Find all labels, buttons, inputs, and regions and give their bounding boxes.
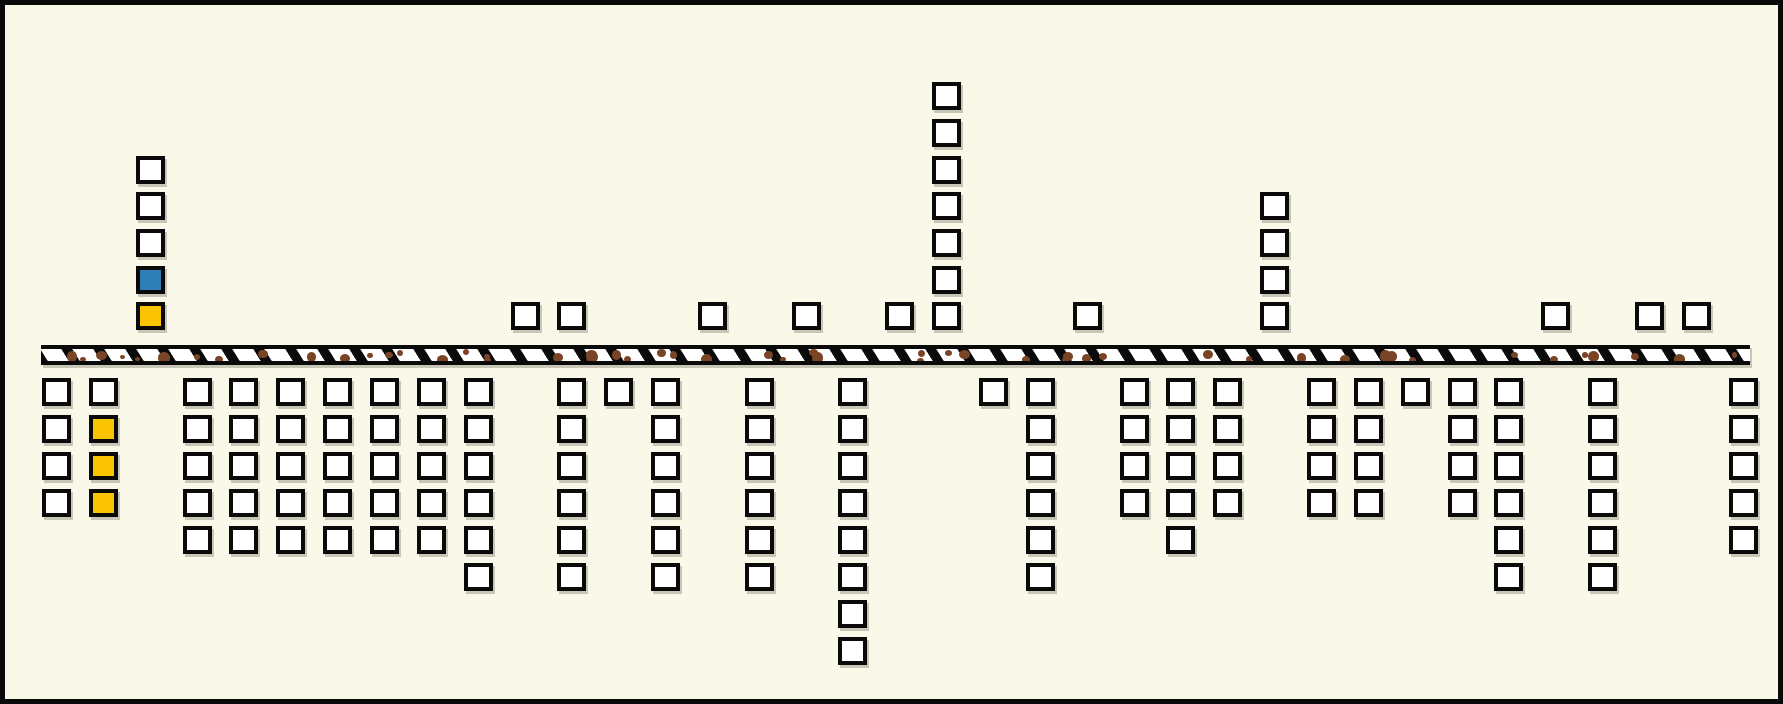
tile-white[interactable] (417, 415, 446, 443)
game-canvas (0, 0, 1783, 704)
tile-white[interactable] (1026, 378, 1055, 406)
tile-white[interactable] (42, 452, 71, 480)
tile-white[interactable] (651, 452, 680, 480)
tile-white[interactable] (276, 452, 305, 480)
tile-white[interactable] (1307, 452, 1336, 480)
tile-white[interactable] (1166, 415, 1195, 443)
tile-white[interactable] (464, 489, 493, 517)
tile-white[interactable] (557, 563, 586, 591)
tile-white[interactable] (1588, 452, 1617, 480)
tile-white[interactable] (745, 526, 774, 554)
tile-white[interactable] (1588, 378, 1617, 406)
tile-white[interactable] (464, 563, 493, 591)
tile-white[interactable] (370, 489, 399, 517)
below-ground-layer (5, 5, 1778, 699)
tile-white[interactable] (1307, 378, 1336, 406)
tile-white[interactable] (1026, 526, 1055, 554)
tile-white[interactable] (1588, 526, 1617, 554)
tile-white[interactable] (464, 378, 493, 406)
tile-white[interactable] (1494, 489, 1523, 517)
tile-white[interactable] (370, 526, 399, 554)
tile-white[interactable] (1213, 415, 1242, 443)
tile-white[interactable] (838, 489, 867, 517)
tile-white[interactable] (229, 489, 258, 517)
tile-white[interactable] (557, 526, 586, 554)
tile-white[interactable] (745, 378, 774, 406)
tile-white[interactable] (417, 452, 446, 480)
tile-white[interactable] (323, 489, 352, 517)
tile-white[interactable] (557, 378, 586, 406)
tile-white[interactable] (1354, 489, 1383, 517)
tile-white[interactable] (1588, 415, 1617, 443)
tile-white[interactable] (1120, 415, 1149, 443)
tile-white[interactable] (183, 415, 212, 443)
tile-white[interactable] (1448, 452, 1477, 480)
tile-white[interactable] (838, 637, 867, 665)
tile-white[interactable] (838, 526, 867, 554)
tile-white[interactable] (276, 378, 305, 406)
tile-white[interactable] (229, 378, 258, 406)
tile-white[interactable] (1026, 489, 1055, 517)
tile-white[interactable] (42, 489, 71, 517)
tile-white[interactable] (838, 563, 867, 591)
tile-white[interactable] (557, 415, 586, 443)
tile-white[interactable] (838, 600, 867, 628)
tile-white[interactable] (745, 452, 774, 480)
tile-white[interactable] (323, 415, 352, 443)
tile-white[interactable] (1307, 489, 1336, 517)
tile-white[interactable] (1120, 452, 1149, 480)
tile-white[interactable] (1120, 489, 1149, 517)
tile-white[interactable] (1307, 415, 1336, 443)
tile-white[interactable] (1354, 452, 1383, 480)
tile-white[interactable] (1494, 452, 1523, 480)
tile-white[interactable] (370, 378, 399, 406)
tile-white[interactable] (276, 489, 305, 517)
tile-white[interactable] (604, 378, 633, 406)
tile-white[interactable] (1448, 415, 1477, 443)
tile-white[interactable] (464, 415, 493, 443)
tile-white[interactable] (464, 452, 493, 480)
tile-white[interactable] (323, 452, 352, 480)
tile-white[interactable] (1494, 415, 1523, 443)
tile-white[interactable] (1494, 563, 1523, 591)
tile-white[interactable] (229, 526, 258, 554)
tile-white[interactable] (1166, 526, 1195, 554)
tile-white[interactable] (417, 526, 446, 554)
tile-white[interactable] (745, 563, 774, 591)
tile-white[interactable] (651, 563, 680, 591)
tile-white[interactable] (979, 378, 1008, 406)
tile-white[interactable] (417, 378, 446, 406)
tile-white[interactable] (229, 452, 258, 480)
tile-white[interactable] (1401, 378, 1430, 406)
tile-white[interactable] (1729, 526, 1758, 554)
tile-white[interactable] (89, 378, 118, 406)
tile-white[interactable] (183, 489, 212, 517)
tile-white[interactable] (1729, 415, 1758, 443)
tile-white[interactable] (1213, 378, 1242, 406)
tile-white[interactable] (1166, 378, 1195, 406)
tile-white[interactable] (1026, 563, 1055, 591)
tile-white[interactable] (183, 526, 212, 554)
tile-white[interactable] (417, 489, 446, 517)
tile-white[interactable] (1729, 378, 1758, 406)
tile-yellow[interactable] (89, 452, 118, 480)
tile-white[interactable] (745, 489, 774, 517)
tile-white[interactable] (1213, 489, 1242, 517)
tile-white[interactable] (651, 526, 680, 554)
tile-white[interactable] (1729, 489, 1758, 517)
tile-white[interactable] (838, 452, 867, 480)
tile-white[interactable] (745, 415, 774, 443)
tile-white[interactable] (1588, 489, 1617, 517)
tile-white[interactable] (838, 415, 867, 443)
tile-white[interactable] (183, 378, 212, 406)
tile-white[interactable] (1026, 452, 1055, 480)
tile-white[interactable] (1494, 526, 1523, 554)
tile-white[interactable] (1120, 378, 1149, 406)
tile-white[interactable] (323, 378, 352, 406)
tile-white[interactable] (651, 489, 680, 517)
tile-yellow[interactable] (89, 415, 118, 443)
tile-white[interactable] (1166, 452, 1195, 480)
tile-white[interactable] (1026, 415, 1055, 443)
tile-white[interactable] (1588, 563, 1617, 591)
tile-white[interactable] (42, 415, 71, 443)
tile-white[interactable] (323, 526, 352, 554)
tile-yellow[interactable] (89, 489, 118, 517)
tile-white[interactable] (370, 415, 399, 443)
tile-white[interactable] (370, 452, 399, 480)
tile-white[interactable] (557, 489, 586, 517)
tile-white[interactable] (1354, 378, 1383, 406)
tile-white[interactable] (276, 526, 305, 554)
tile-white[interactable] (557, 452, 586, 480)
tile-white[interactable] (651, 415, 680, 443)
tile-white[interactable] (464, 526, 493, 554)
tile-white[interactable] (229, 415, 258, 443)
tile-white[interactable] (276, 415, 305, 443)
tile-white[interactable] (42, 378, 71, 406)
tile-white[interactable] (183, 452, 212, 480)
tile-white[interactable] (1448, 489, 1477, 517)
tile-white[interactable] (1729, 452, 1758, 480)
tile-white[interactable] (651, 378, 680, 406)
tile-white[interactable] (1354, 415, 1383, 443)
tile-white[interactable] (1213, 452, 1242, 480)
tile-white[interactable] (1166, 489, 1195, 517)
tile-white[interactable] (1494, 378, 1523, 406)
tile-white[interactable] (838, 378, 867, 406)
tile-white[interactable] (1448, 378, 1477, 406)
